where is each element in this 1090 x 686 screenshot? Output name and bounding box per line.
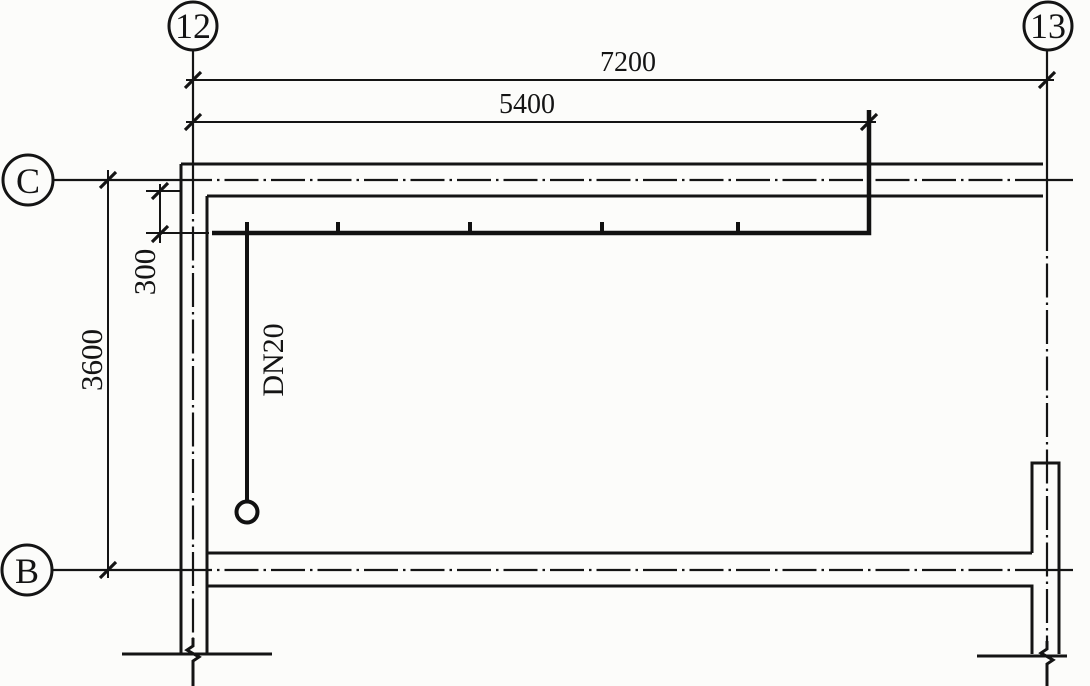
pier-right bbox=[1032, 463, 1059, 654]
axis-bubble-B: B bbox=[2, 545, 52, 595]
axis-label-B: B bbox=[15, 551, 39, 591]
dim-text-3600: 3600 bbox=[74, 329, 109, 391]
dim-text-5400: 5400 bbox=[499, 89, 555, 120]
dimension-labels: 7200 5400 300 3600 DN20 bbox=[74, 47, 656, 397]
axis-bubble-C: C bbox=[3, 155, 53, 205]
dim-text-300: 300 bbox=[127, 249, 162, 296]
dim-text-7200: 7200 bbox=[600, 47, 656, 78]
dimension-300 bbox=[146, 183, 209, 243]
axis-label-13: 13 bbox=[1030, 6, 1066, 46]
pipe-main-run-and-riser bbox=[212, 110, 869, 233]
pipes bbox=[212, 110, 869, 523]
break-symbol-left bbox=[187, 638, 199, 686]
pipe-label-dn20: DN20 bbox=[257, 323, 290, 396]
axis-label-12: 12 bbox=[175, 6, 211, 46]
axis-label-C: C bbox=[16, 161, 40, 201]
break-symbol-right bbox=[1041, 641, 1053, 686]
footings bbox=[122, 638, 1067, 686]
walls bbox=[181, 164, 1059, 654]
riser-outlet-circle bbox=[237, 502, 258, 523]
piping-plan-page: 12 13 C B 7200 5400 300 3600 DN20 bbox=[0, 0, 1090, 686]
piping-plan-drawing: 12 13 C B 7200 5400 300 3600 DN20 bbox=[0, 0, 1090, 686]
axis-bubble-12: 12 bbox=[169, 2, 217, 50]
axis-bubble-13: 13 bbox=[1024, 2, 1072, 50]
wall-bottom bbox=[207, 553, 1032, 654]
